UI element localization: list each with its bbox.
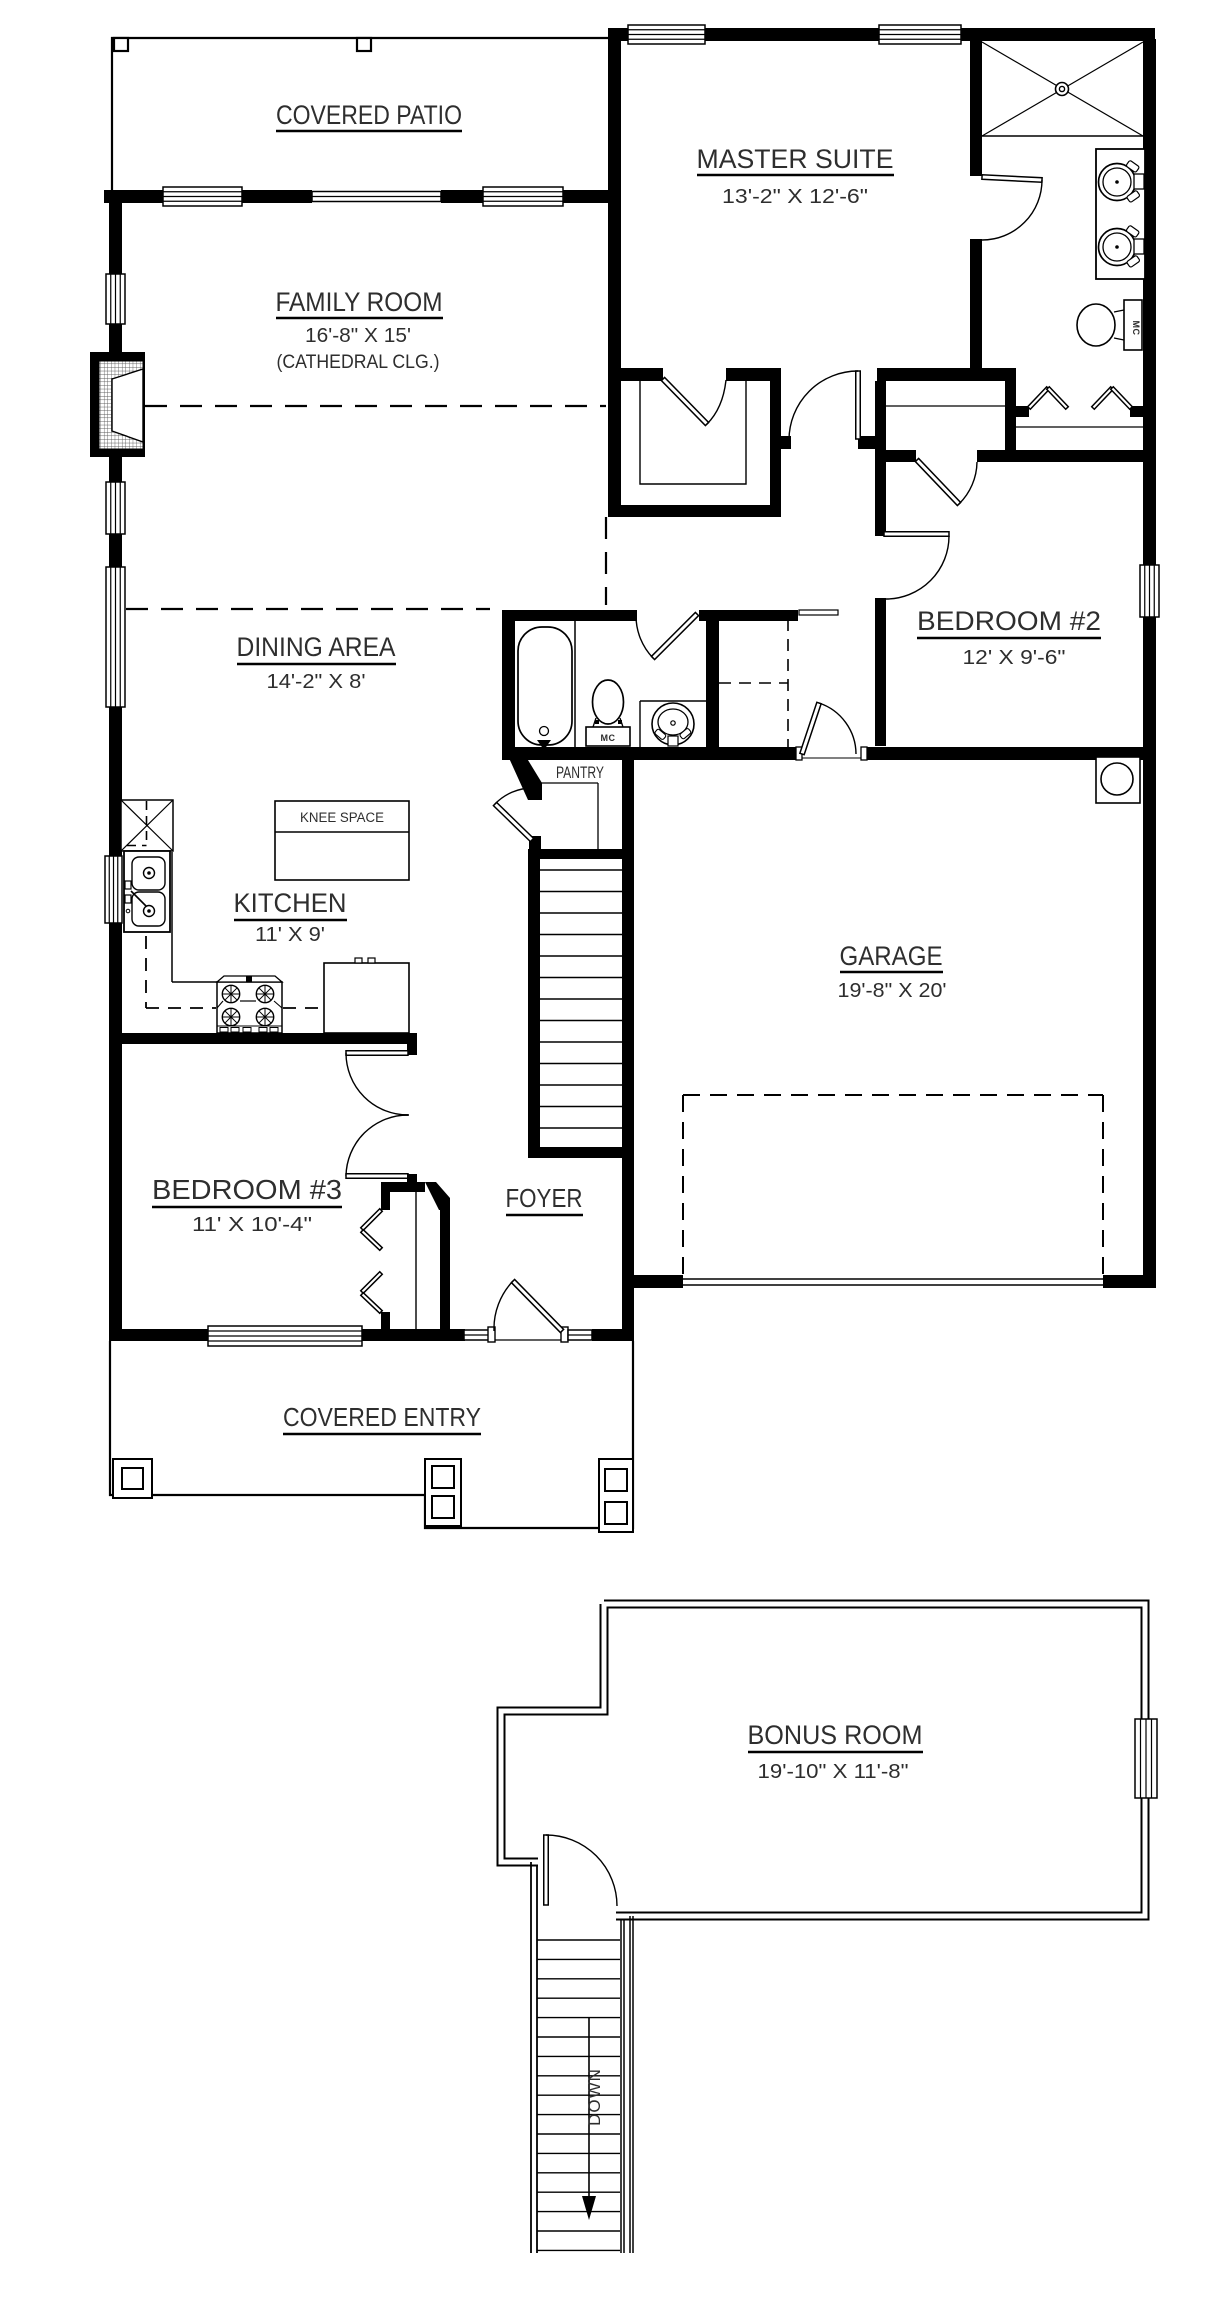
svg-text:COVERED ENTRY: COVERED ENTRY: [283, 1402, 481, 1432]
svg-text:MC: MC: [601, 733, 616, 743]
svg-text:MASTER SUITE: MASTER SUITE: [697, 144, 894, 174]
svg-text:19'-10" X 11'-8": 19'-10" X 11'-8": [758, 1761, 909, 1783]
svg-text:FAMILY ROOM: FAMILY ROOM: [276, 287, 443, 317]
svg-text:12' X 9'-6": 12' X 9'-6": [963, 647, 1066, 669]
svg-text:GARAGE: GARAGE: [840, 941, 943, 971]
svg-text:11' X 10'-4": 11' X 10'-4": [192, 1214, 312, 1236]
svg-text:16'-8" X 15': 16'-8" X 15': [305, 325, 411, 347]
svg-text:FOYER: FOYER: [506, 1183, 583, 1213]
svg-text:DINING AREA: DINING AREA: [237, 632, 396, 662]
svg-text:19'-8" X 20': 19'-8" X 20': [838, 980, 947, 1002]
svg-text:MC: MC: [1131, 321, 1141, 336]
svg-text:PANTRY: PANTRY: [556, 763, 604, 782]
svg-text:BONUS ROOM: BONUS ROOM: [748, 1720, 923, 1750]
svg-text:(CATHEDRAL CLG.): (CATHEDRAL CLG.): [277, 352, 440, 373]
svg-text:BEDROOM #3: BEDROOM #3: [152, 1174, 342, 1205]
svg-text:BEDROOM #2: BEDROOM #2: [917, 606, 1101, 636]
svg-text:11' X 9': 11' X 9': [255, 924, 325, 946]
svg-text:13'-2" X 12'-6": 13'-2" X 12'-6": [722, 186, 868, 208]
svg-text:KNEE SPACE: KNEE SPACE: [300, 810, 384, 825]
svg-text:KITCHEN: KITCHEN: [234, 888, 347, 918]
svg-text:COVERED PATIO: COVERED PATIO: [276, 100, 462, 130]
svg-text:DOWN: DOWN: [585, 2068, 604, 2126]
svg-text:14'-2" X 8': 14'-2" X 8': [267, 671, 366, 693]
